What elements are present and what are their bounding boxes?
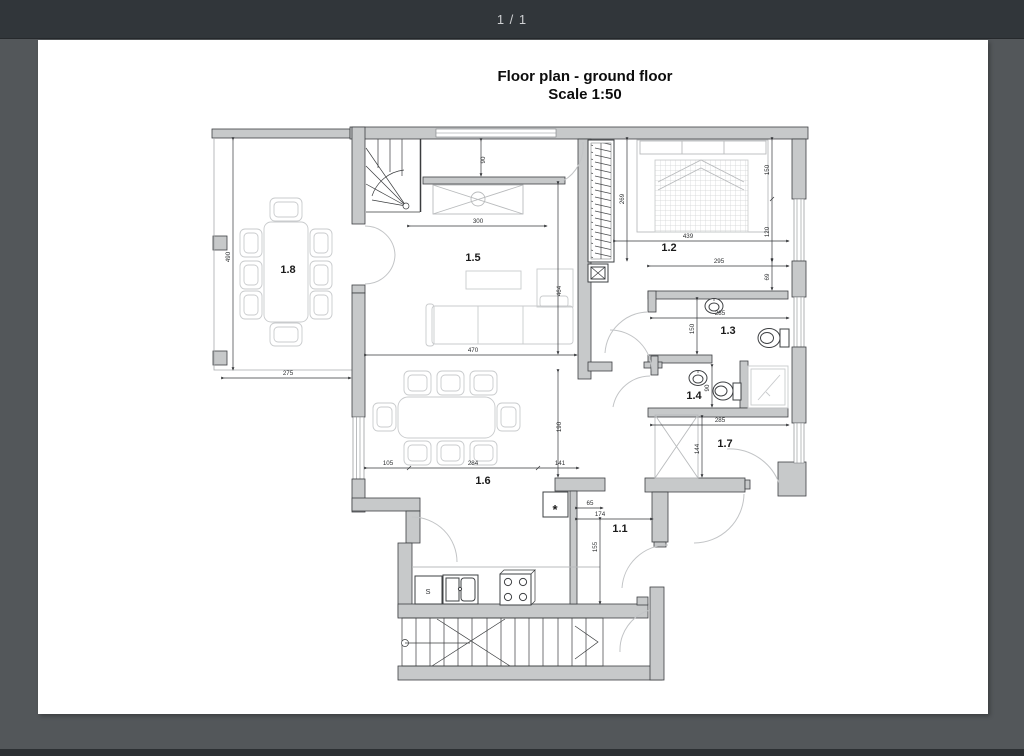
dim-90-landing: 90 <box>480 156 487 163</box>
sink-1-4 <box>689 371 707 386</box>
toilet-1-3 <box>758 329 789 348</box>
wardrobe <box>588 140 614 262</box>
room-label-1-3: 1.3 <box>720 325 735 337</box>
bedroom-furniture <box>588 140 768 282</box>
dim-90-wc: 90 <box>704 384 711 391</box>
dim-285-hall: 285 <box>715 417 726 424</box>
stove <box>500 570 535 605</box>
dim-144: 144 <box>694 443 701 454</box>
sink-unit-label: S <box>425 587 430 596</box>
dim-65: 65 <box>587 500 594 507</box>
dim-285-bath: 285 <box>715 310 726 317</box>
room-label-1-6: 1.6 <box>475 475 490 487</box>
dining-set <box>373 371 520 465</box>
lower-stairs <box>402 618 604 666</box>
living-room-furniture <box>426 185 573 346</box>
kitchen-sink <box>443 575 478 604</box>
dim-295: 295 <box>714 258 725 265</box>
window-bottom-edge <box>0 749 1024 756</box>
dim-190: 190 <box>556 421 563 432</box>
dim-439: 439 <box>683 233 694 240</box>
dim-150-bedroom: 150 <box>764 164 771 175</box>
room-label-1-4: 1.4 <box>686 390 702 402</box>
dim-284: 284 <box>468 460 479 467</box>
dim-120: 120 <box>764 226 771 237</box>
document-page[interactable]: Floor plan - ground floor Scale 1:50 <box>38 40 988 714</box>
upper-stairs <box>366 139 421 212</box>
shower <box>748 366 788 408</box>
dim-69: 69 <box>764 273 771 280</box>
dim-150-bath: 150 <box>689 323 696 334</box>
dim-300: 300 <box>473 218 484 225</box>
page-indicator: 1 / 1 <box>497 12 527 27</box>
toilet-1-4 <box>713 382 741 400</box>
room-label-1-8: 1.8 <box>280 264 295 276</box>
flue-box <box>588 264 608 282</box>
dim-105: 105 <box>383 460 394 467</box>
dim-174: 174 <box>595 511 606 518</box>
room-label-1-1: 1.1 <box>612 523 627 535</box>
room-label-1-2: 1.2 <box>661 242 676 254</box>
dim-275: 275 <box>283 370 294 377</box>
dim-155: 155 <box>592 541 599 552</box>
floor-plan-canvas: 490 275 90 300 464 470 190 105 284 141 2… <box>38 40 988 714</box>
dim-464: 464 <box>556 285 563 296</box>
pdf-toolbar: 1 / 1 <box>0 0 1024 39</box>
room-label-1-5: 1.5 <box>465 252 480 264</box>
dim-490: 490 <box>225 251 232 262</box>
dim-470: 470 <box>468 347 479 354</box>
viewer-area[interactable]: Floor plan - ground floor Scale 1:50 <box>0 39 1024 749</box>
room-label-1-7: 1.7 <box>717 438 732 450</box>
dim-141: 141 <box>555 460 566 467</box>
closet-1-7 <box>655 415 698 478</box>
dim-269: 269 <box>619 193 626 204</box>
